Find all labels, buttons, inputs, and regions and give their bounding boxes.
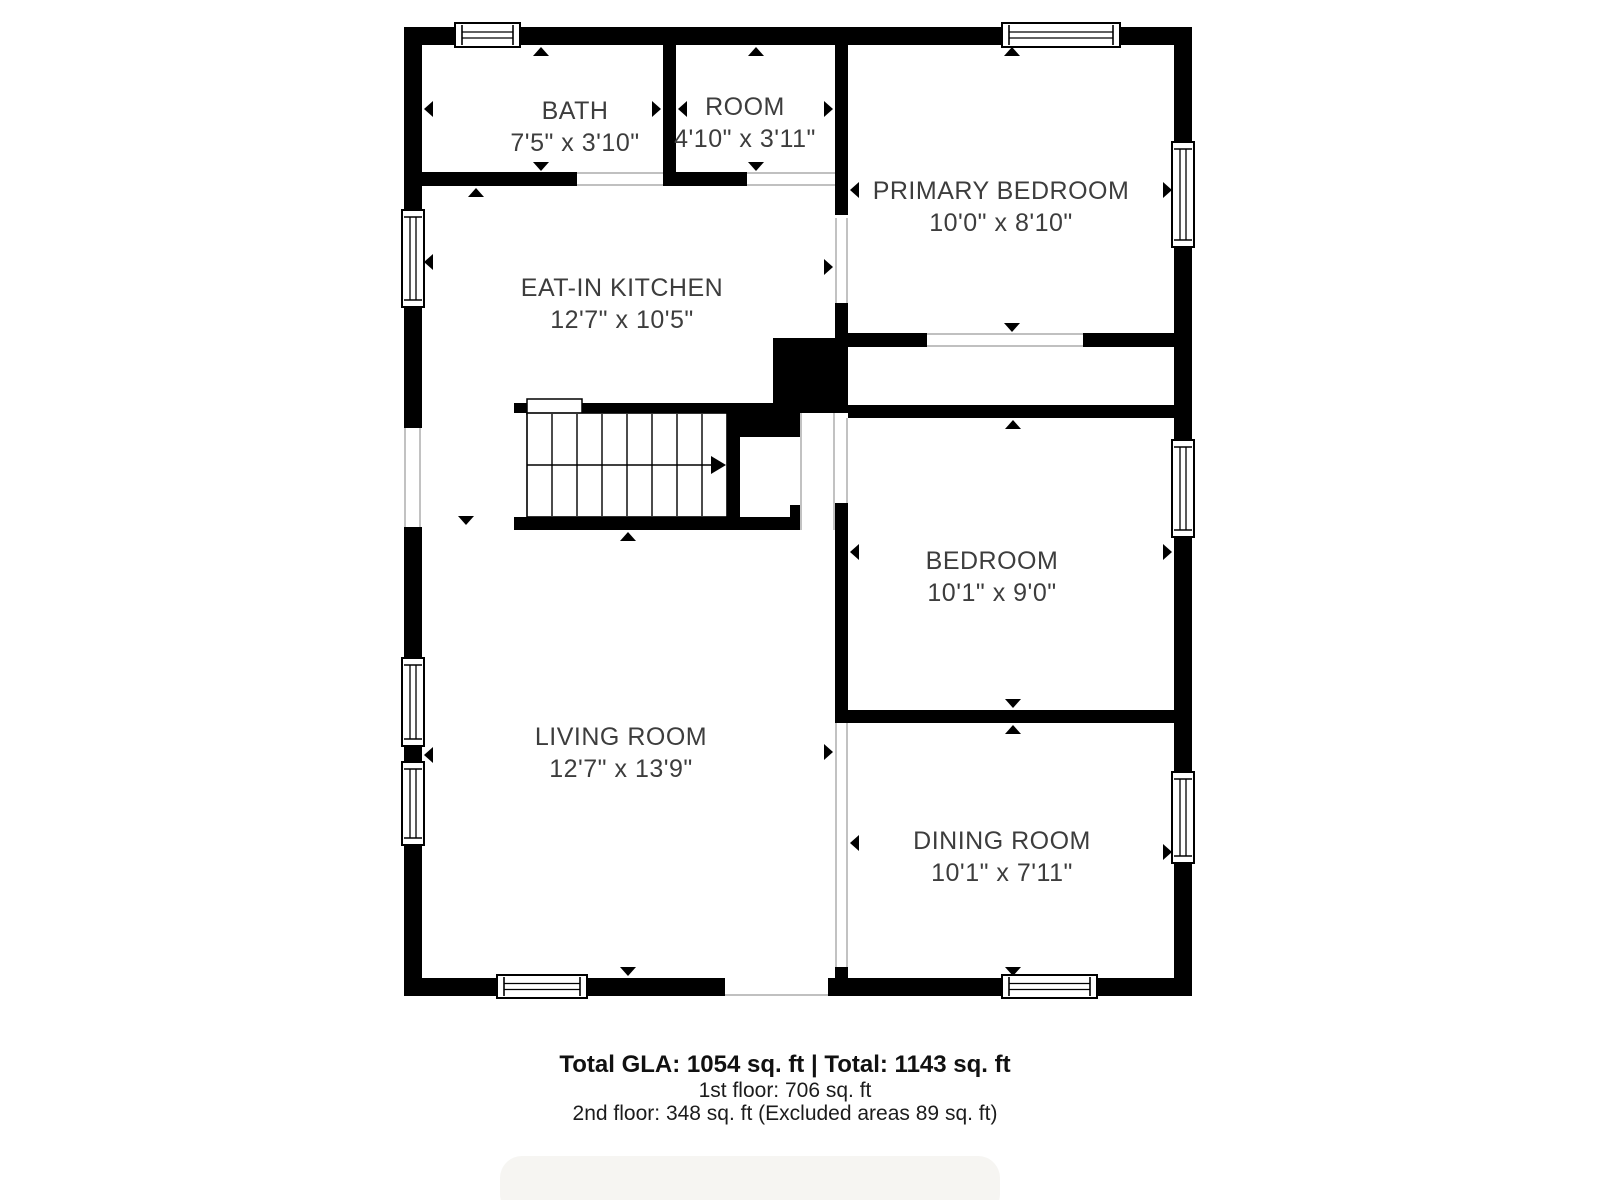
room-dimensions: 12'7" x 10'5" (550, 306, 694, 334)
wall (514, 517, 800, 530)
measure-marker-down-icon (533, 162, 549, 171)
wall (835, 710, 1174, 723)
first-floor-area-text: 1st floor: 706 sq. ft (559, 1079, 1010, 1102)
wall (773, 338, 848, 413)
measure-marker-right-icon (1163, 182, 1172, 198)
window (1002, 23, 1120, 47)
measure-marker-left-icon (424, 254, 433, 270)
measure-marker-right-icon (1163, 544, 1172, 560)
room-label: LIVING ROOM (535, 723, 707, 751)
measure-marker-left-icon (850, 544, 859, 560)
door-opening (800, 413, 835, 530)
wall (740, 413, 802, 437)
room-dimensions: 7'5" x 3'10" (510, 129, 639, 157)
measure-marker-up-icon (1004, 47, 1020, 56)
room-label: PRIMARY BEDROOM (873, 177, 1130, 205)
measure-marker-right-icon (1163, 844, 1172, 860)
measure-marker-up-icon (533, 47, 549, 56)
wall (835, 503, 848, 723)
window (1172, 772, 1194, 863)
window (497, 975, 587, 998)
measure-marker-right-icon (824, 259, 833, 275)
floor-plan-page: BATH7'5" x 3'10"ROOM4'10" x 3'11"PRIMARY… (0, 0, 1600, 1200)
measure-marker-right-icon (652, 101, 661, 117)
measure-marker-right-icon (824, 744, 833, 760)
room-label: BEDROOM (926, 547, 1059, 575)
wall (422, 172, 577, 186)
measure-marker-down-icon (1004, 323, 1020, 332)
window (402, 658, 424, 746)
measure-marker-left-icon (424, 101, 433, 117)
wall (727, 403, 740, 530)
window (1002, 975, 1097, 998)
room-dimensions: 12'7" x 13'9" (549, 755, 693, 783)
window (402, 762, 424, 845)
door-opening (725, 978, 828, 996)
total-gla-text: Total GLA: 1054 sq. ft | Total: 1143 sq.… (559, 1051, 1010, 1079)
measure-marker-right-icon (824, 101, 833, 117)
wall (848, 405, 1174, 418)
wall (1083, 333, 1174, 347)
wall (848, 333, 927, 347)
wall (835, 45, 848, 215)
room-dimensions: 10'1" x 9'0" (927, 579, 1056, 607)
room-label: BATH (542, 97, 609, 125)
measure-marker-down-icon (620, 967, 636, 976)
measure-marker-up-icon (748, 47, 764, 56)
measure-marker-up-icon (1005, 725, 1021, 734)
wall (404, 746, 422, 762)
measure-marker-left-icon (424, 747, 433, 763)
measure-marker-down-icon (748, 162, 764, 171)
window (455, 23, 520, 47)
window (402, 210, 424, 307)
room-label: ROOM (705, 93, 785, 121)
room-label: DINING ROOM (913, 827, 1091, 855)
bottom-bar (500, 1156, 1000, 1200)
measure-marker-left-icon (678, 101, 687, 117)
room-label: EAT-IN KITCHEN (521, 274, 723, 302)
measure-marker-left-icon (850, 835, 859, 851)
area-summary: Total GLA: 1054 sq. ft | Total: 1143 sq.… (559, 1051, 1010, 1125)
measure-marker-left-icon (850, 182, 859, 198)
window (1172, 142, 1194, 247)
wall (663, 172, 747, 186)
measure-marker-down-icon (1005, 699, 1021, 708)
wall (835, 967, 848, 978)
window (1172, 440, 1194, 537)
stair-landing-opening (527, 399, 582, 414)
floor-plan: BATH7'5" x 3'10"ROOM4'10" x 3'11"PRIMARY… (0, 0, 1600, 1200)
measure-marker-up-icon (468, 188, 484, 197)
measure-marker-up-icon (620, 532, 636, 541)
measure-marker-up-icon (1005, 420, 1021, 429)
room-dimensions: 10'0" x 8'10" (929, 209, 1073, 237)
door-opening (835, 723, 848, 967)
measure-marker-down-icon (458, 516, 474, 525)
room-dimensions: 10'1" x 7'11" (931, 859, 1073, 887)
second-floor-area-text: 2nd floor: 348 sq. ft (Excluded areas 89… (559, 1102, 1010, 1125)
room-dimensions: 4'10" x 3'11" (674, 125, 816, 153)
